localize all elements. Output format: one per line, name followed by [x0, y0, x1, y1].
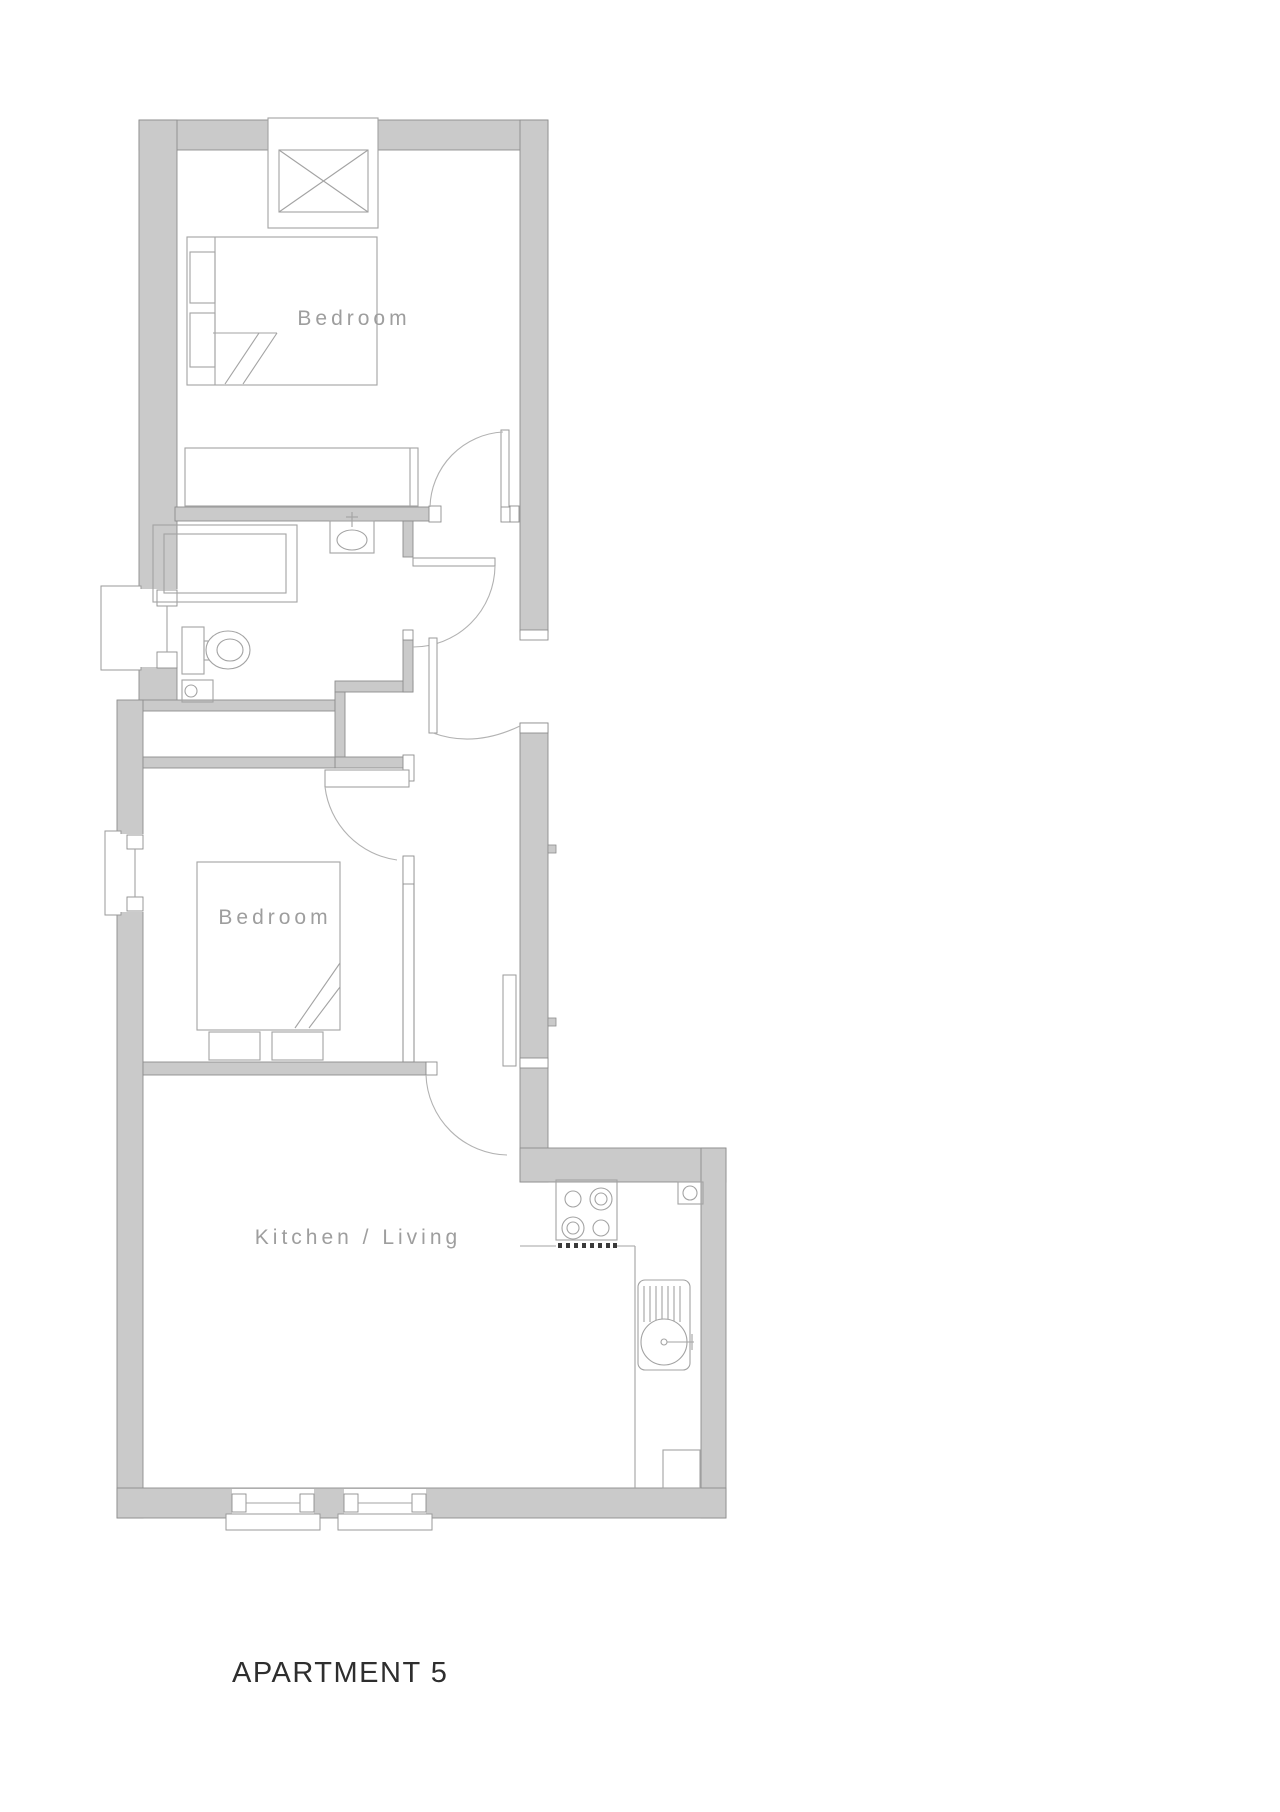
appliance-icon [663, 1450, 700, 1488]
sink-drainer-icon [638, 1280, 694, 1370]
kitchen-door [426, 975, 516, 1155]
wall-tie-nub [548, 1018, 556, 1026]
bathroom-window-icon [101, 586, 179, 670]
door-leaf [325, 770, 409, 787]
floor-plan: Bedroom Bedroom Kitchen / Living APARTME… [0, 0, 1280, 1812]
hob-icon [556, 1180, 617, 1248]
door-leaf [429, 638, 437, 733]
wall-bed2-east-thin [403, 858, 414, 1062]
door-swing-arc [426, 1075, 507, 1155]
kitchen-window-icon [338, 1489, 432, 1530]
kitchen-living-label: Kitchen / Living [255, 1226, 461, 1249]
wall-hall-west-bar [403, 640, 413, 692]
wall-bed1-bath-divider [175, 507, 430, 521]
bedroom2-door [325, 770, 409, 860]
door-swing-arc [325, 787, 397, 860]
wall-alcove-top [335, 681, 413, 692]
door-swing-arc [413, 566, 495, 647]
bathroom-unit-icon [182, 680, 213, 702]
kitchen-appliance-icon [678, 1182, 703, 1204]
bedroom2-bed-icon [197, 862, 340, 1060]
bedroom2-window-icon [105, 831, 144, 915]
wall-kitchen-northeast [520, 1148, 726, 1182]
wall-bed2-south [143, 1062, 426, 1075]
thin-partitions [403, 858, 414, 1062]
wall-bath-south [139, 700, 335, 711]
kitchen-counter [520, 1246, 635, 1488]
toilet-icon [182, 627, 250, 674]
entrance-door [429, 638, 520, 739]
bedroom1-wardrobe-icon [185, 448, 418, 506]
bathroom-door [413, 558, 495, 647]
chimney-flue-icon [268, 118, 378, 228]
kitchen-window-icon [226, 1489, 320, 1530]
wall-bed2-north [143, 757, 335, 768]
door-swing-arc [430, 432, 503, 507]
wall-tie-nub [548, 845, 556, 853]
door-leaf [501, 430, 509, 507]
wall-right-lower [520, 723, 548, 1182]
wall-left-lower [117, 700, 143, 1518]
wall-right-upper [520, 120, 548, 632]
door-leaf [413, 558, 495, 566]
bedroom1-label: Bedroom [297, 307, 410, 330]
page-title: APARTMENT 5 [232, 1657, 448, 1689]
wall-alcove-left [335, 692, 345, 757]
door-swing-arc [433, 726, 520, 739]
bedroom1-door [430, 430, 509, 507]
bedroom2-label: Bedroom [218, 906, 331, 929]
door-leaf [503, 975, 516, 1066]
wall-kitchen-right [701, 1148, 726, 1518]
wall-alcove-bottom [335, 757, 413, 768]
wall-bath-east-stub [403, 521, 413, 557]
